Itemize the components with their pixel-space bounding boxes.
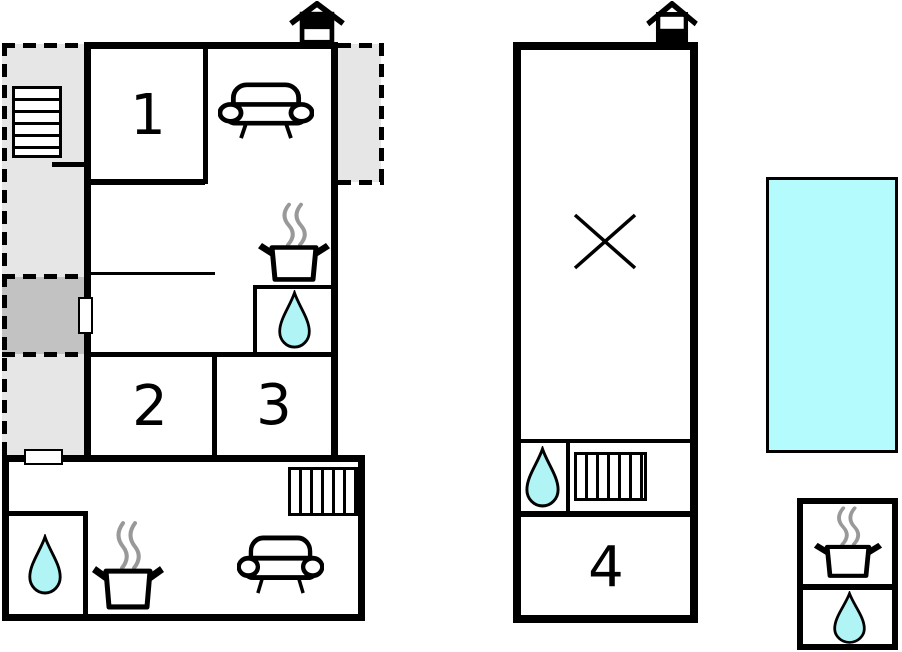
stove-pot-icon (90, 518, 166, 612)
door-opening (24, 449, 63, 465)
wall (513, 42, 521, 623)
chimney-icon (289, 1, 345, 46)
wall (253, 285, 257, 356)
stove-pot-icon (256, 200, 332, 284)
wall (566, 441, 570, 513)
water-drop-icon (276, 290, 313, 350)
wall (52, 162, 85, 167)
room-3-label: 3 (244, 376, 304, 436)
wall (83, 511, 88, 621)
dashed-border (379, 43, 384, 186)
wall (2, 455, 9, 621)
wall (797, 584, 898, 590)
wall (521, 439, 690, 443)
wall (513, 511, 698, 517)
radiator-icon (288, 467, 358, 516)
sofa-icon (218, 82, 314, 140)
dashed-border (2, 352, 84, 357)
water-drop-icon (523, 446, 562, 509)
water-drop-icon (831, 591, 868, 645)
wall (2, 511, 87, 516)
x-mark-icon (571, 211, 639, 272)
floor-plan: 1 2 3 4 (0, 0, 902, 652)
wall (513, 615, 698, 623)
wall (2, 614, 365, 621)
terrace-area-bottom (2, 354, 84, 455)
sofa-icon (237, 535, 324, 595)
wall (84, 42, 91, 462)
wall (212, 355, 217, 457)
radiator-icon (574, 452, 647, 501)
wall (90, 179, 205, 185)
wall (331, 42, 338, 462)
swimming-pool (766, 177, 898, 453)
stove-pot-icon (812, 504, 884, 580)
dashed-border (338, 180, 384, 185)
room-1-label: 1 (118, 86, 178, 146)
dashed-border (2, 43, 7, 458)
wall (203, 47, 208, 184)
dashed-border (2, 43, 84, 48)
terrace-area-mid (2, 277, 84, 354)
terrace-area-topright (338, 44, 381, 182)
dashed-border (2, 274, 84, 279)
wall (90, 272, 215, 275)
wall (358, 455, 365, 621)
wall (84, 352, 338, 357)
terrace-area-top (2, 44, 84, 277)
chimney-icon (646, 1, 698, 47)
room-4-label: 4 (576, 538, 636, 598)
wall (690, 42, 698, 623)
water-drop-icon (26, 534, 64, 596)
door-opening (78, 297, 93, 334)
room-2-label: 2 (120, 377, 180, 437)
wall (253, 285, 335, 289)
stairs-icon (12, 86, 62, 158)
